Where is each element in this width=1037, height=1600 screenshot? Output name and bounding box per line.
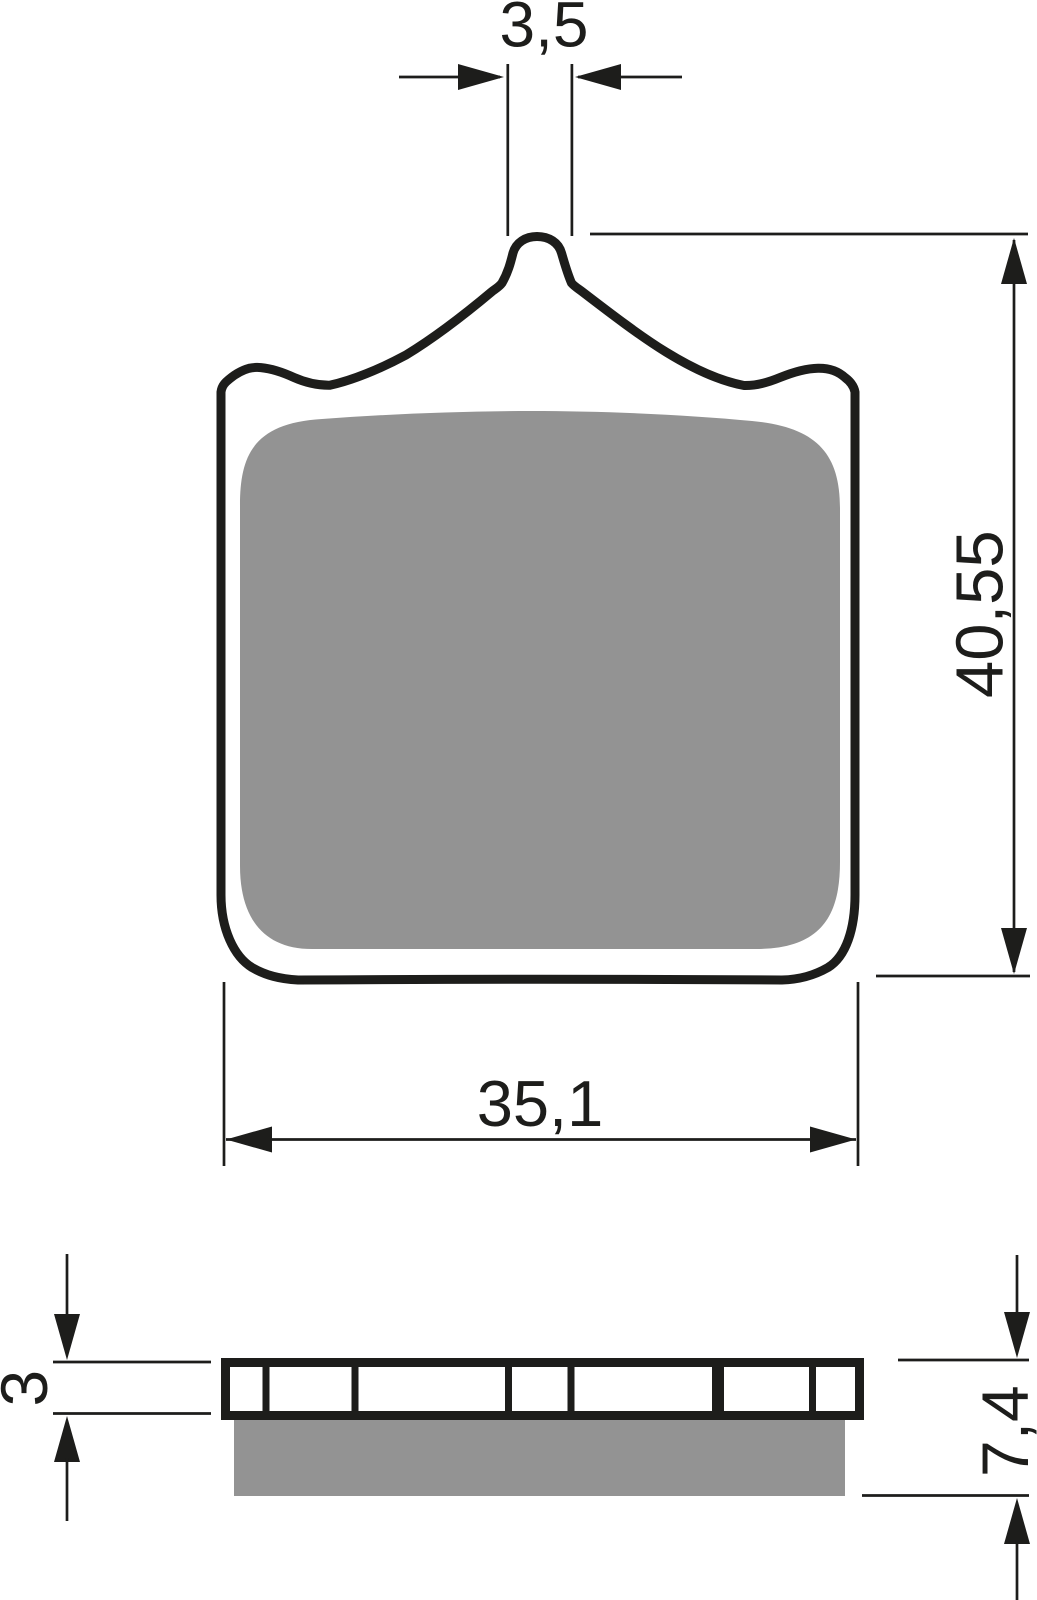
svg-text:3: 3 [0,1370,61,1407]
svg-text:40,55: 40,55 [943,530,1018,698]
svg-text:35,1: 35,1 [477,1067,604,1140]
svg-text:3,5: 3,5 [500,0,589,61]
svg-text:7,4: 7,4 [968,1385,1037,1477]
